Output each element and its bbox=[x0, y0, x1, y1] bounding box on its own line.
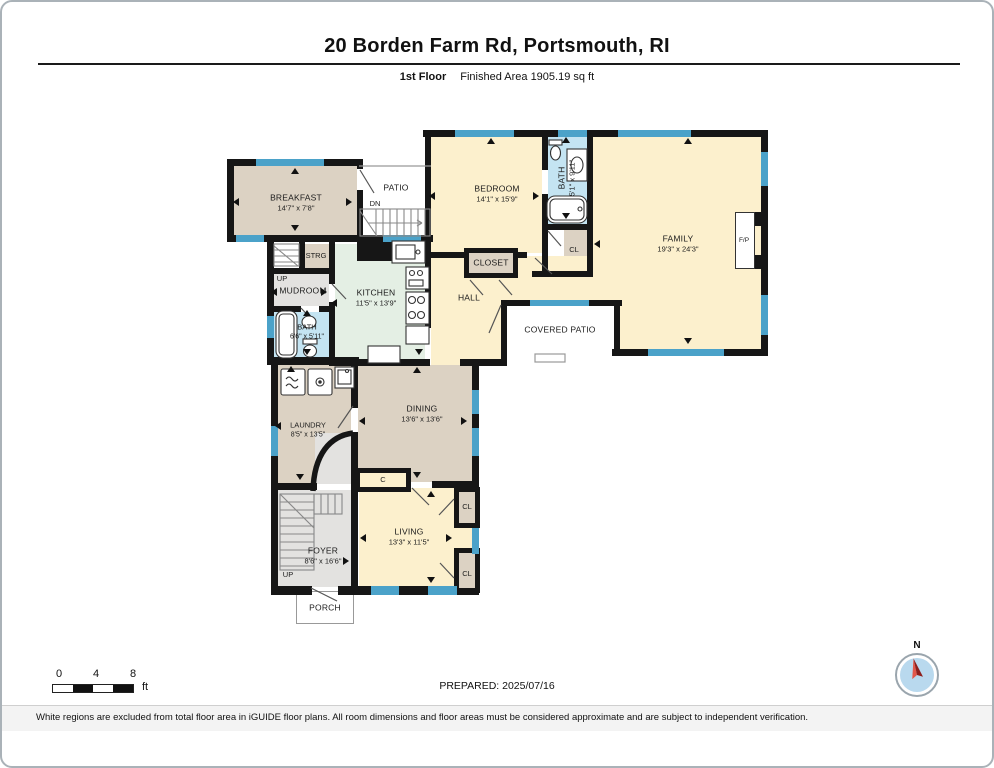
plan-decoration-layer bbox=[2, 2, 994, 768]
dimension-arrow-right bbox=[446, 534, 452, 542]
room-label-covered-patio: COVERED PATIO bbox=[524, 324, 595, 335]
wall-segment bbox=[329, 359, 430, 366]
wall-segment bbox=[542, 271, 593, 277]
closet-label-c: C bbox=[380, 475, 385, 485]
wall-segment bbox=[425, 130, 431, 328]
window-marker bbox=[761, 152, 768, 186]
room-label-family: FAMILY 19'3" x 24'3" bbox=[657, 234, 698, 255]
wall-segment bbox=[267, 306, 301, 312]
compass-north-label: N bbox=[888, 640, 946, 651]
window-marker bbox=[472, 528, 479, 554]
dimension-arrow-up bbox=[303, 310, 311, 316]
dimension-arrow-right bbox=[461, 417, 467, 425]
stair-label-up-mudroom: UP bbox=[277, 274, 287, 284]
dimension-arrow-up bbox=[287, 366, 295, 372]
dimension-arrow-left bbox=[594, 240, 600, 248]
dimension-arrow-left bbox=[331, 299, 337, 307]
wall-segment bbox=[542, 224, 548, 277]
mudroom-stairs bbox=[274, 244, 299, 266]
room-dims: 6'6" x 5'11" bbox=[290, 332, 324, 341]
wall-segment bbox=[542, 130, 548, 170]
window-marker bbox=[455, 130, 514, 137]
floor-plan-page: 20 Borden Farm Rd, Portsmouth, RI 1st Fl… bbox=[0, 0, 994, 768]
room-dims: 13'6" x 13'6" bbox=[401, 415, 442, 425]
wall-segment bbox=[357, 159, 363, 169]
room-dims: 11'5" x 13'9" bbox=[356, 299, 397, 309]
room-label-patio: PATIO bbox=[383, 182, 408, 193]
wall-segment bbox=[338, 586, 355, 595]
room-label-bath-lower: BATH 6'6" x 5'11" bbox=[290, 323, 324, 342]
room-dims: 14'7" x 7'8" bbox=[270, 204, 322, 214]
window-marker bbox=[761, 295, 768, 335]
dimension-arrow-up bbox=[427, 491, 435, 497]
closet-label-cl-living-lower: CL bbox=[462, 569, 472, 579]
dimension-arrow-right bbox=[321, 288, 327, 296]
room-name: BREAKFAST bbox=[270, 193, 322, 204]
dimension-arrow-up bbox=[562, 137, 570, 143]
dimension-arrow-right bbox=[346, 198, 352, 206]
room-name: LIVING bbox=[389, 527, 430, 538]
scale-tick-0: 0 bbox=[56, 668, 62, 680]
room-label-laundry: LAUNDRY 8'5" x 13'5" bbox=[290, 421, 326, 440]
room-dims: 8'5" x 13'5" bbox=[290, 430, 326, 439]
wall-segment bbox=[299, 238, 305, 272]
covered-patio-step bbox=[535, 354, 565, 362]
room-label-storage: STRG bbox=[306, 251, 327, 261]
stair-label-up-foyer: UP bbox=[283, 570, 293, 580]
dimension-arrow-down bbox=[562, 213, 570, 219]
room-name: FOYER bbox=[305, 546, 342, 557]
dimension-arrow-down bbox=[296, 474, 304, 480]
window-marker bbox=[428, 586, 457, 595]
window-marker bbox=[472, 390, 479, 414]
window-marker bbox=[236, 235, 264, 242]
dimension-arrow-left bbox=[275, 422, 281, 430]
room-name: BEDROOM bbox=[474, 184, 519, 195]
fireplace-wall-chunk bbox=[754, 255, 762, 269]
fireplace-label: F/P bbox=[739, 237, 749, 245]
room-dims: 5'1" x 9'11" bbox=[568, 160, 578, 196]
room-name: LAUNDRY bbox=[290, 421, 326, 431]
dimension-arrow-left bbox=[360, 534, 366, 542]
floor-subtitle: 1st FloorFinished Area 1905.19 sq ft bbox=[2, 71, 992, 83]
dimension-arrow-left bbox=[271, 288, 277, 296]
area-label: Finished Area 1905.19 sq ft bbox=[460, 71, 594, 83]
window-marker bbox=[383, 235, 421, 242]
fireplace-wall-chunk bbox=[754, 212, 762, 226]
wall-segment bbox=[271, 357, 278, 595]
disclaimer-text: White regions are excluded from total fl… bbox=[36, 712, 808, 723]
room-name: BATH bbox=[290, 323, 324, 333]
dimension-arrow-down bbox=[303, 349, 311, 355]
room-label-bedroom: BEDROOM 14'1" x 15'9" bbox=[474, 184, 519, 205]
room-label-living: LIVING 13'3" x 11'5" bbox=[389, 527, 430, 548]
dimension-arrow-right bbox=[343, 557, 349, 565]
dimension-arrow-up bbox=[684, 138, 692, 144]
foyer-wedge-fill bbox=[315, 433, 351, 484]
dimension-arrow-down bbox=[684, 338, 692, 344]
dimension-arrow-right bbox=[533, 192, 539, 200]
window-marker bbox=[618, 130, 691, 137]
wall-segment bbox=[587, 130, 593, 277]
closet-label-cl-upper: CL bbox=[569, 245, 579, 255]
stair-label-dn: DN bbox=[370, 199, 381, 209]
room-label-bath-upper: BATH 5'1" x 9'11" bbox=[557, 160, 578, 196]
dimension-arrow-down bbox=[427, 577, 435, 583]
window-marker bbox=[256, 159, 324, 166]
dimension-arrow-down bbox=[291, 225, 299, 231]
room-label-dining: DINING 13'6" x 13'6" bbox=[401, 404, 442, 425]
room-label-mudroom: MUDROOM bbox=[279, 285, 326, 296]
dimension-arrow-left bbox=[233, 198, 239, 206]
window-marker bbox=[472, 428, 479, 456]
disclaimer-band: White regions are excluded from total fl… bbox=[2, 705, 992, 731]
compass-rose: N bbox=[888, 640, 946, 706]
room-name: FAMILY bbox=[657, 234, 698, 245]
page-title: 20 Borden Farm Rd, Portsmouth, RI bbox=[2, 35, 992, 58]
scale-tick-8: 8 bbox=[130, 668, 136, 680]
room-dims: 13'3" x 11'5" bbox=[389, 538, 430, 548]
wall-segment bbox=[614, 300, 620, 356]
dimension-arrow-up bbox=[291, 168, 299, 174]
scale-tick-4: 4 bbox=[93, 668, 99, 680]
room-label-foyer: FOYER 8'6" x 16'6" bbox=[305, 546, 342, 567]
room-label-hall: HALL bbox=[458, 292, 480, 303]
wall-segment bbox=[460, 359, 507, 366]
wall-segment bbox=[351, 359, 358, 408]
dimension-arrow-up bbox=[487, 138, 495, 144]
window-marker bbox=[271, 426, 278, 456]
floor-label: 1st Floor bbox=[400, 71, 446, 83]
room-label-breakfast: BREAKFAST 14'7" x 7'8" bbox=[270, 193, 322, 214]
dimension-arrow-left bbox=[359, 417, 365, 425]
dimension-arrow-up bbox=[413, 367, 421, 373]
closet-label-hall: CLOSET bbox=[473, 257, 508, 268]
room-label-porch: PORCH bbox=[309, 602, 341, 613]
wall-segment bbox=[271, 586, 312, 595]
room-name: DINING bbox=[401, 404, 442, 415]
header-divider bbox=[38, 63, 960, 65]
dimension-arrow-down bbox=[415, 349, 423, 355]
dimension-arrow-down bbox=[413, 472, 421, 478]
wall-segment bbox=[329, 238, 335, 284]
wall-segment bbox=[351, 432, 358, 595]
compass-icon bbox=[894, 652, 940, 698]
room-label-kitchen: KITCHEN 11'5" x 13'9" bbox=[356, 288, 397, 309]
prepared-date-label: PREPARED: 2025/07/16 bbox=[2, 680, 992, 692]
closet-label-cl-living-upper: CL bbox=[462, 502, 472, 512]
wall-segment bbox=[271, 483, 317, 490]
window-marker bbox=[558, 130, 587, 137]
room-dims: 14'1" x 15'9" bbox=[474, 195, 519, 205]
window-marker bbox=[648, 349, 724, 356]
room-name: KITCHEN bbox=[356, 288, 397, 299]
wall-segment bbox=[267, 238, 274, 365]
room-name: BATH bbox=[557, 160, 568, 196]
window-marker bbox=[530, 300, 589, 306]
room-dims: 8'6" x 16'6" bbox=[305, 557, 342, 567]
room-dims: 19'3" x 24'3" bbox=[657, 245, 698, 255]
wall-segment bbox=[532, 271, 544, 277]
dimension-arrow-left bbox=[429, 192, 435, 200]
wall-segment bbox=[501, 300, 507, 366]
wall-segment bbox=[542, 224, 593, 230]
window-marker bbox=[267, 316, 274, 338]
window-marker bbox=[371, 586, 399, 595]
